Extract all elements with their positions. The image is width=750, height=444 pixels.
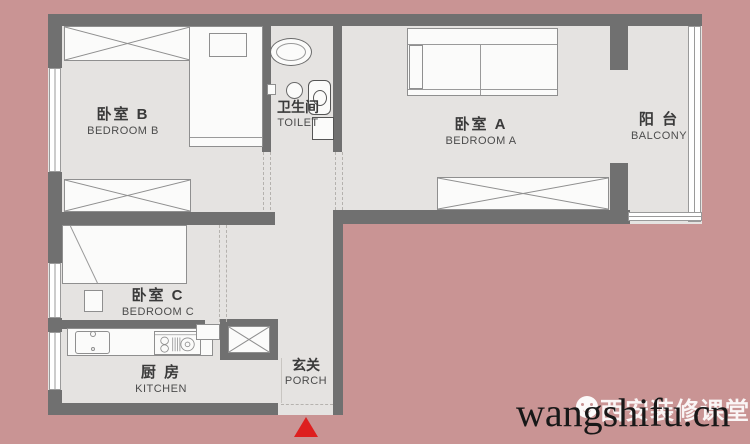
room-name-zh: 卧室 C bbox=[122, 288, 194, 304]
bed-head-line bbox=[408, 44, 557, 45]
bed-foot-line bbox=[190, 137, 262, 138]
wall-bottom bbox=[48, 403, 278, 415]
bed-bedroom-a bbox=[407, 28, 558, 96]
wash-basin bbox=[286, 82, 303, 99]
wall-left-1 bbox=[48, 14, 62, 68]
wall-toilet-right bbox=[333, 26, 342, 152]
wardrobe-bedroom-a bbox=[437, 177, 609, 210]
bathtub-inner bbox=[276, 43, 306, 61]
bed-foot-line bbox=[408, 89, 557, 90]
blanket-fold-line bbox=[63, 226, 186, 283]
opening-bedroom-c-b bbox=[226, 225, 227, 322]
room-name-zh: 阳 台 bbox=[631, 112, 687, 128]
window-balcony-right bbox=[688, 26, 701, 222]
bathtub-oval bbox=[270, 38, 312, 66]
room-name-zh: 卧室 B bbox=[87, 107, 159, 123]
wall-bedroom-b-bottom bbox=[62, 212, 275, 225]
room-name-zh: 卫生间 bbox=[277, 99, 319, 115]
room-label-kitchen: 厨 房 KITCHEN bbox=[135, 365, 187, 395]
window-bedroom-b bbox=[49, 68, 61, 172]
watermark-main-text: wangshifu.cn bbox=[516, 391, 730, 435]
room-name-en: BEDROOM C bbox=[122, 306, 194, 318]
shaft-box bbox=[228, 326, 270, 353]
wall-bedroom-a-bottom bbox=[333, 210, 630, 224]
opening-hall-right-b bbox=[342, 152, 343, 210]
room-name-en: TOILET bbox=[277, 117, 319, 129]
room-label-toilet: 卫生间 TOILET bbox=[277, 99, 319, 129]
nightstand-bedroom-c bbox=[84, 290, 103, 312]
floor-drain bbox=[267, 84, 276, 95]
window-bedroom-c bbox=[49, 263, 61, 318]
opening-toilet-left-a bbox=[263, 152, 264, 210]
room-name-zh: 玄关 bbox=[285, 357, 327, 373]
window-kitchen bbox=[49, 332, 61, 390]
room-label-balcony: 阳 台 BALCONY bbox=[631, 112, 687, 142]
room-name-en: BALCONY bbox=[631, 130, 687, 142]
faucet-icon bbox=[90, 331, 96, 337]
room-name-en: BEDROOM A bbox=[445, 135, 516, 147]
bed-side-table bbox=[409, 45, 423, 89]
floor-plan-page: { "title": "apartment-floor-plan", "colo… bbox=[0, 0, 750, 444]
room-label-porch: 玄关 PORCH bbox=[285, 357, 327, 387]
kitchen-sink bbox=[75, 331, 110, 354]
sink-drain bbox=[91, 347, 95, 351]
entrance-threshold-line bbox=[281, 404, 333, 405]
stove-burners-icon bbox=[155, 332, 200, 354]
wall-top bbox=[48, 14, 702, 26]
opening-toilet-left-b bbox=[270, 152, 271, 210]
wardrobe-x-icon bbox=[438, 178, 608, 209]
bed-center-line bbox=[480, 44, 481, 95]
porch-divider-line bbox=[281, 358, 282, 403]
opening-bedroom-c-a bbox=[219, 225, 220, 322]
shaft-x-icon bbox=[229, 327, 269, 352]
wardrobe-x-icon bbox=[65, 27, 190, 60]
room-name-zh: 卧室 A bbox=[445, 117, 516, 133]
bed-bedroom-c bbox=[62, 225, 187, 284]
room-name-en: BEDROOM B bbox=[87, 125, 159, 137]
wardrobe-bedroom-b-bottom bbox=[64, 179, 191, 212]
wardrobe-bedroom-b-top bbox=[64, 26, 191, 61]
wall-porch-right bbox=[333, 210, 343, 415]
pillow bbox=[209, 33, 247, 57]
kitchen-stove bbox=[154, 331, 201, 355]
wall-balcony-stub-bottom bbox=[610, 163, 628, 222]
window-balcony-bottom bbox=[628, 212, 702, 221]
counter-end-cabinet bbox=[196, 324, 220, 340]
wall-left-3 bbox=[48, 318, 62, 332]
room-name-zh: 厨 房 bbox=[135, 365, 187, 381]
room-label-bedroom-a: 卧室 A BEDROOM A bbox=[445, 117, 516, 147]
opening-hall-right-a bbox=[335, 152, 336, 210]
room-label-bedroom-b: 卧室 B BEDROOM B bbox=[87, 107, 159, 137]
room-name-en: PORCH bbox=[285, 375, 327, 387]
bed-bedroom-b bbox=[189, 26, 263, 147]
room-name-en: KITCHEN bbox=[135, 383, 187, 395]
room-label-bedroom-c: 卧室 C BEDROOM C bbox=[122, 288, 194, 318]
entrance-arrow-icon bbox=[294, 417, 318, 437]
wardrobe-x-icon bbox=[65, 180, 190, 211]
wall-left-2 bbox=[48, 172, 62, 263]
wall-balcony-stub-top bbox=[610, 26, 628, 70]
